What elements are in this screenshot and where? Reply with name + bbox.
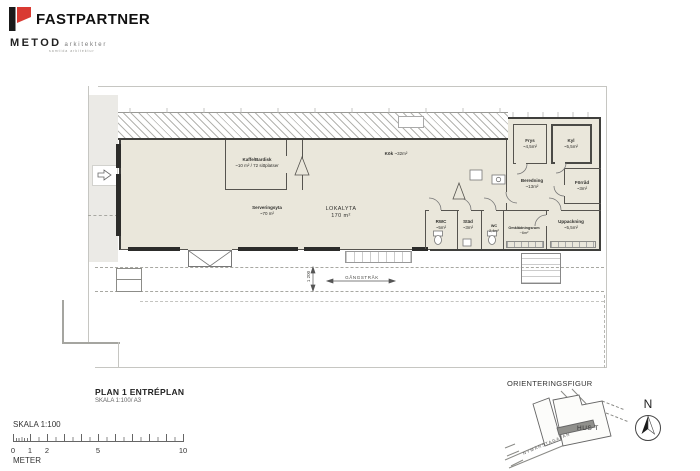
- orientation-title: ORIENTERINGSFIGUR: [507, 379, 593, 388]
- kitchen-bench-1: [470, 170, 482, 180]
- door-arc-wc: [484, 198, 496, 210]
- scalebar-tick-10: 10: [179, 446, 187, 455]
- door-arc-stad: [459, 198, 471, 210]
- entry-arrow-icon: [98, 170, 111, 180]
- scalebar-tick-1: 1: [28, 446, 32, 455]
- drawing-sheet: FASTPARTNER METODarkitekter samtida arki…: [0, 0, 700, 471]
- dim-1200-label: 1 200: [306, 271, 311, 282]
- vestibule-door-swing: [189, 251, 231, 266]
- scalebar-tick-0: 0: [11, 446, 15, 455]
- room-label-servering: Serveringsyta~70 m²: [252, 205, 282, 217]
- room-label-kok: Kök ~32m²: [385, 151, 408, 157]
- scalebar-label: SKALA 1:100: [13, 420, 61, 429]
- door-arc-forrad: [554, 186, 564, 196]
- door-arc-omklad: [535, 215, 546, 226]
- room-label-omklad: Omklädningsrum~6m²: [508, 226, 539, 236]
- door-arc-uppack: [549, 198, 561, 210]
- kitchen-sink: [496, 177, 500, 181]
- toilet-rwc: [435, 236, 442, 245]
- door-arc-rwc: [429, 198, 441, 210]
- room-label-kyl: Kyl~5,5m²: [564, 138, 578, 150]
- hus-t-label: HUS T: [577, 425, 599, 432]
- door-arc-kyl: [556, 163, 566, 173]
- door-arc-beredning: [506, 192, 517, 203]
- room-label-uppack: Uppackning~5,5m²: [558, 219, 584, 231]
- door-symbol-triangle-1: [295, 157, 309, 175]
- room-label-lokalyta: LOKALYTA170 m²: [326, 206, 357, 221]
- room-label-frys: Frys~4,5m²: [523, 138, 537, 150]
- orientation-sketch: [505, 388, 635, 471]
- north-label: N: [644, 397, 653, 411]
- plan-title: PLAN 1 ENTRÉPLAN: [95, 387, 184, 397]
- scalebar-tick-2: 2: [45, 446, 49, 455]
- room-label-forrad: Förråd~3m²: [575, 180, 589, 192]
- compass-icon: [632, 412, 664, 444]
- gangstrak-label: GÅNGSTRÅK: [336, 275, 388, 280]
- plan-subtitle: SKALA 1:100/ A3: [95, 398, 141, 404]
- scalebar-baseline: [13, 441, 183, 442]
- room-label-stad: Städ~3m²: [463, 219, 473, 231]
- room-label-rwc: RWC~5m²: [436, 219, 447, 231]
- scalebar-tick-5: 5: [96, 446, 100, 455]
- room-label-wc: WC2,4m²: [489, 224, 499, 234]
- scalebar-unit: METER: [13, 456, 41, 465]
- sink-stad: [463, 239, 471, 246]
- room-label-kaffe: Kaffe/Bardisk~10 m² / 72 sittplatser: [235, 157, 278, 169]
- door-arc-frys: [517, 164, 527, 174]
- door-symbol-triangle-2: [453, 183, 465, 199]
- room-label-beredning: Beredning~13m²: [521, 178, 543, 190]
- toilet-wc: [489, 236, 496, 245]
